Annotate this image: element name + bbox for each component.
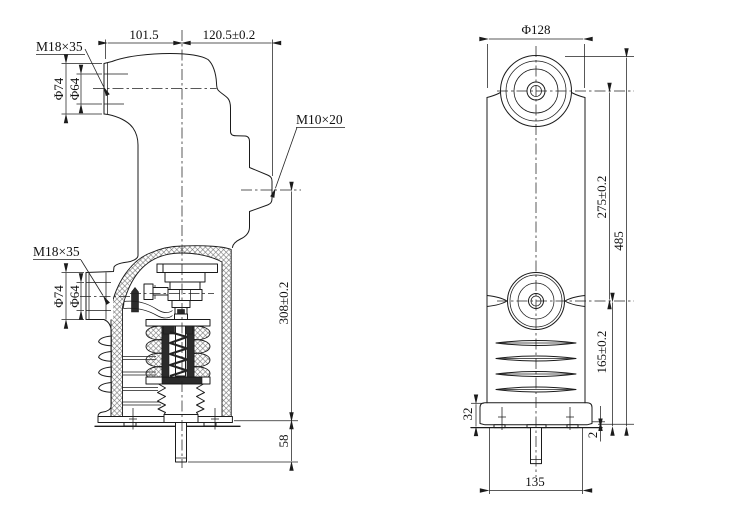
dim-text-phi64-bottom: Φ64 xyxy=(67,285,82,308)
hex-nut xyxy=(168,290,202,301)
dim-text-101-5: 101.5 xyxy=(129,27,158,42)
dim-text-58: 58 xyxy=(276,435,291,448)
flexible-strap xyxy=(124,301,173,318)
right-view: Φ128 275±0.2 485 165±0.2 32 2 135 xyxy=(460,22,634,494)
label-thread-lower: M18×35 xyxy=(33,244,80,259)
shed-fins xyxy=(99,336,112,392)
side-bolt-head xyxy=(144,284,153,300)
bellows-base xyxy=(164,415,198,423)
technical-drawing-canvas: M18×35 101.5 120.5±0.2 Φ74 Φ64 M10×20 M1… xyxy=(0,0,736,515)
stem-collar xyxy=(172,301,190,308)
arm-underside-outline xyxy=(86,114,138,273)
dim-text-2: 2 xyxy=(585,432,600,439)
dim-text-485: 485 xyxy=(611,231,626,251)
stem-block xyxy=(165,273,205,283)
interrupter-top-cap xyxy=(146,320,210,327)
label-thread-upper: M18×35 xyxy=(36,39,83,54)
base-foot-pad xyxy=(204,423,216,427)
dim-text-32: 32 xyxy=(460,408,475,421)
left-view: M18×35 101.5 120.5±0.2 Φ74 Φ64 M10×20 M1… xyxy=(33,27,345,468)
dim-text-phi74-bottom: Φ74 xyxy=(51,285,66,308)
dim-text-275: 275±0.2 xyxy=(594,176,609,219)
drive-rod xyxy=(176,423,187,463)
bellows xyxy=(158,384,205,415)
dim-text-165: 165±0.2 xyxy=(594,331,609,374)
leader-m18-top xyxy=(85,49,104,87)
dim-text-135: 135 xyxy=(525,474,545,489)
dim-text-phi74-top: Φ74 xyxy=(51,77,66,100)
base-foot-pad xyxy=(124,423,136,427)
label-thread-side: M10×20 xyxy=(296,112,343,127)
drawing-sheet: M18×35 101.5 120.5±0.2 Φ74 Φ64 M10×20 M1… xyxy=(0,0,736,515)
lower-terminal-stub xyxy=(86,273,113,320)
top-flange-plate xyxy=(157,264,218,273)
dim-text-phi64-top: Φ64 xyxy=(67,77,82,100)
dim-text-308: 308±0.2 xyxy=(276,282,291,325)
leader-m10 xyxy=(276,128,298,189)
dim-text-phi128: Φ128 xyxy=(521,22,550,37)
dim-text-120-5: 120.5±0.2 xyxy=(203,27,256,42)
